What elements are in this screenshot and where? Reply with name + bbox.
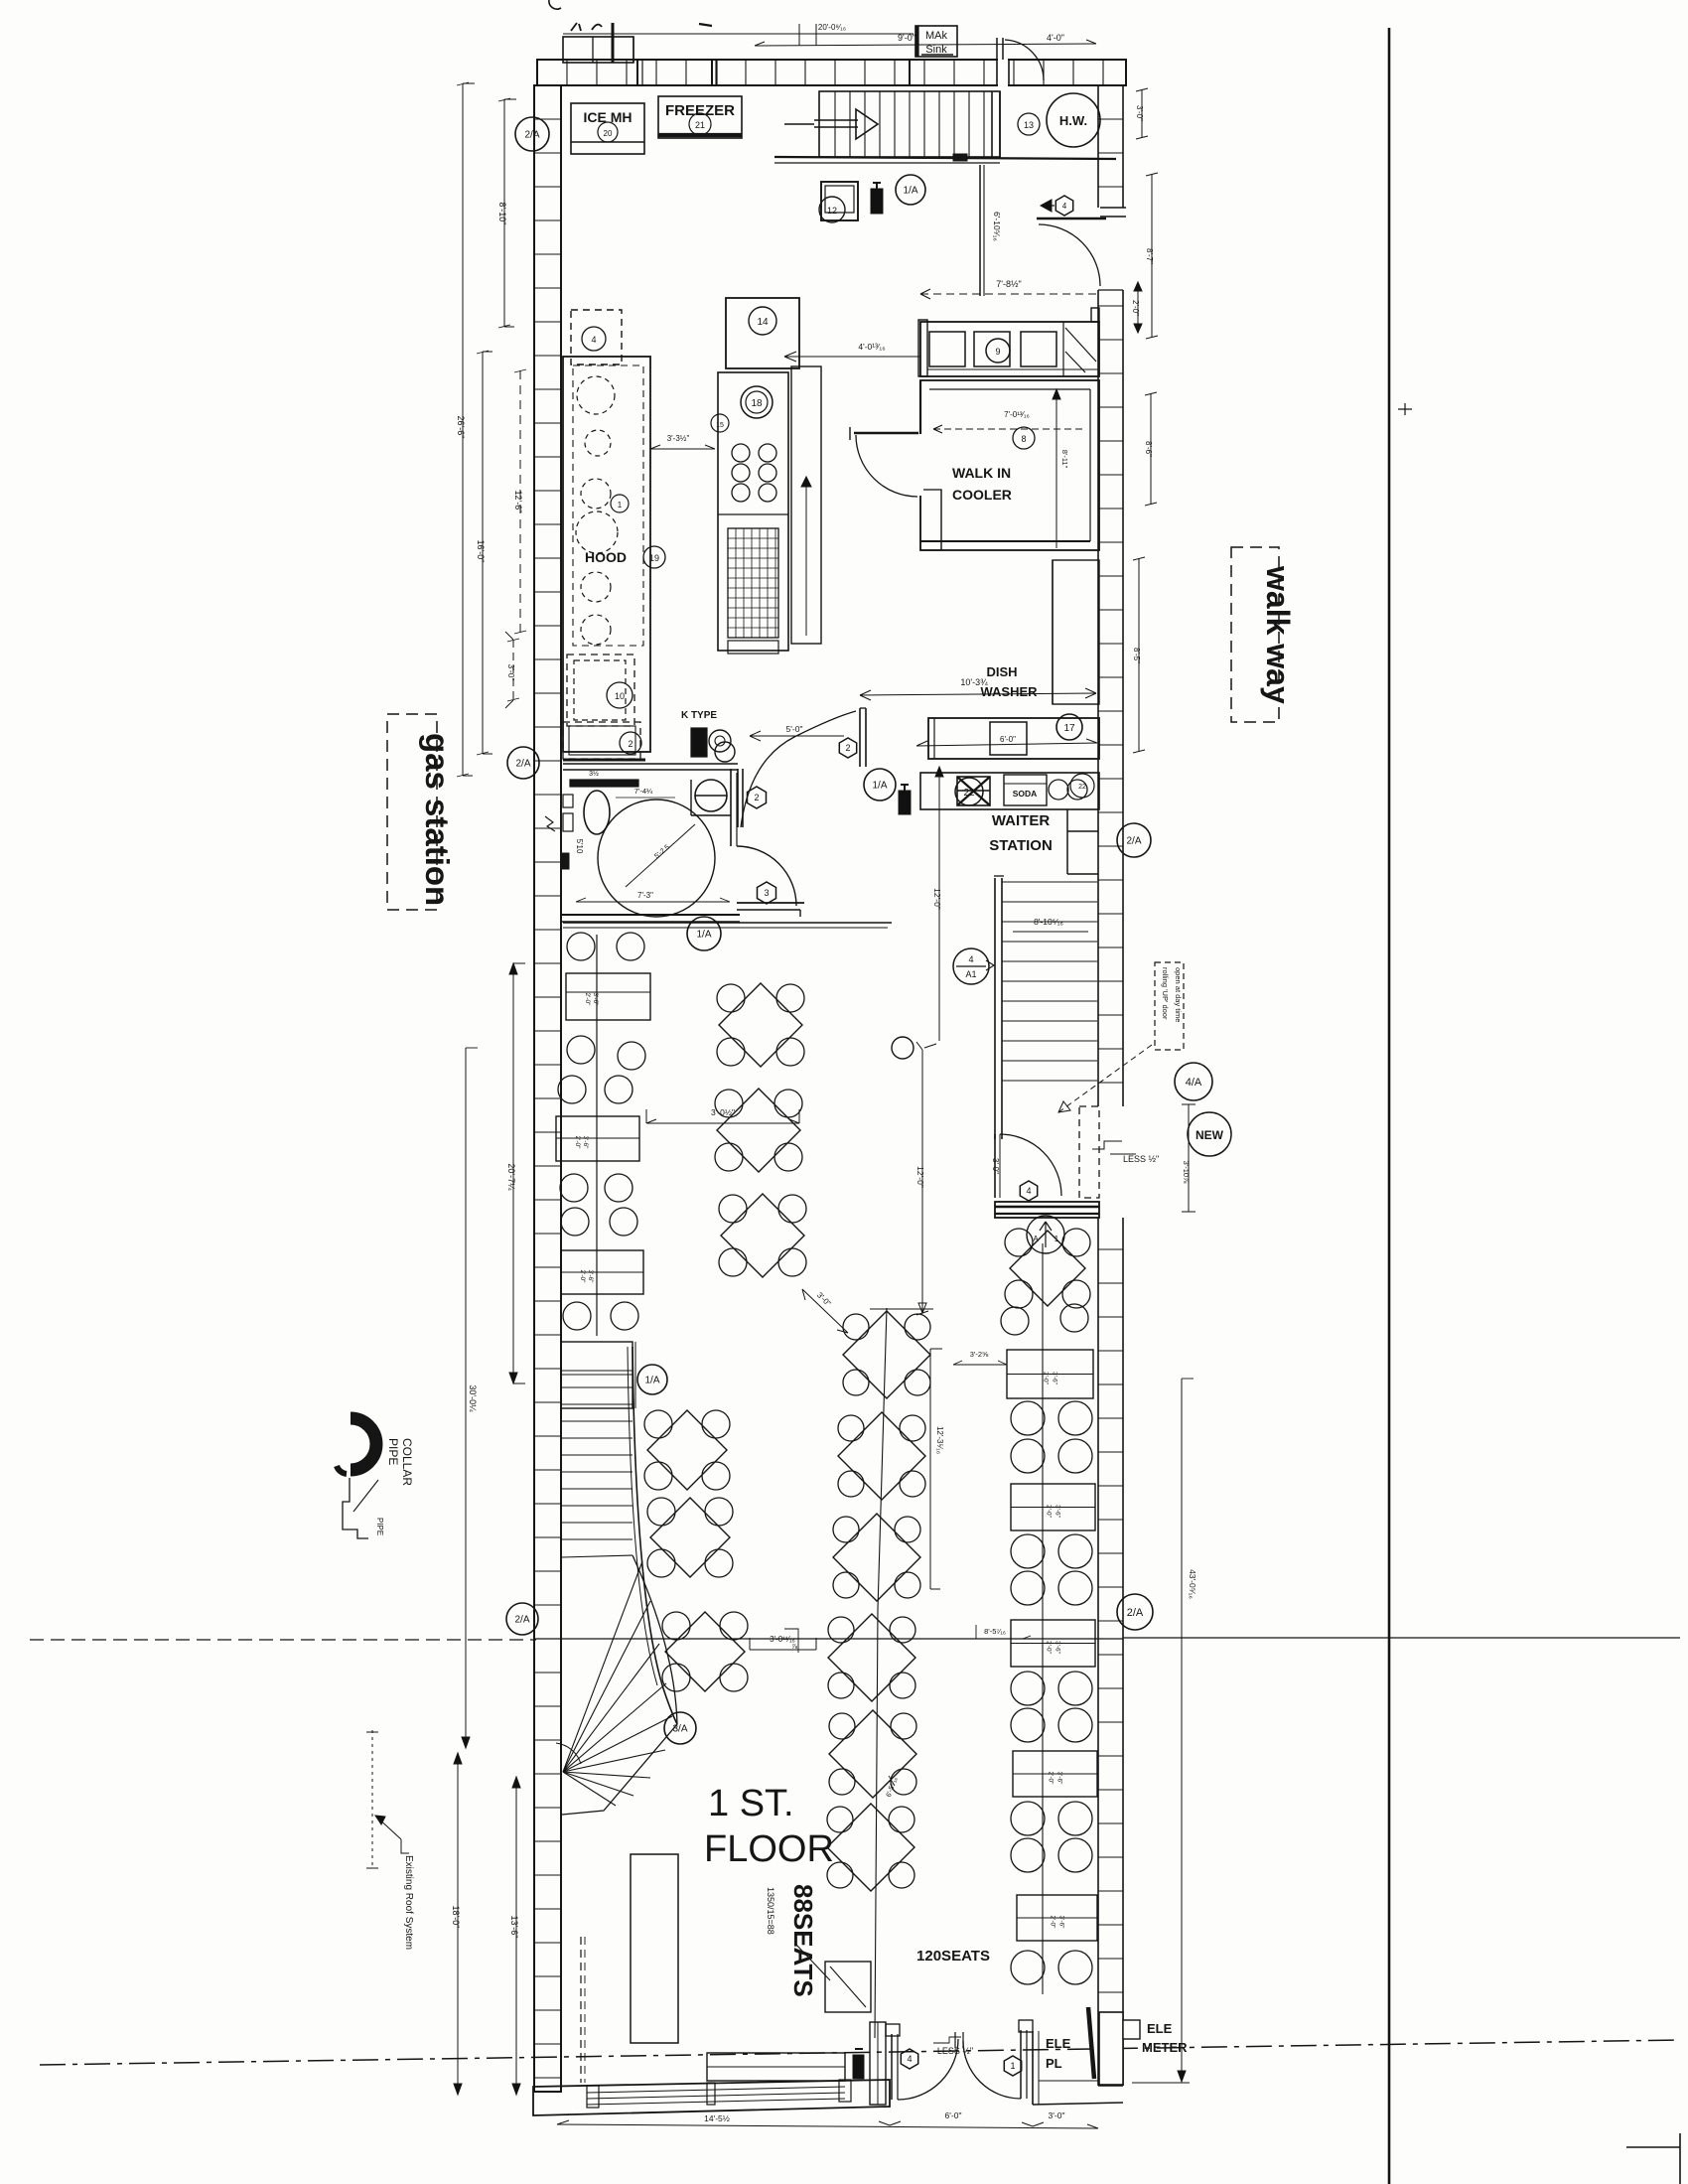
- svg-text:PIPE: PIPE: [386, 1438, 400, 1465]
- svg-text:13'-6": 13'-6": [509, 1916, 519, 1939]
- svg-text:4/A: 4/A: [1186, 1077, 1202, 1089]
- svg-text:12'-0": 12'-0": [932, 888, 942, 910]
- svg-text:120SEATS: 120SEATS: [916, 1948, 990, 1965]
- svg-text:4: 4: [591, 335, 596, 345]
- svg-text:DISH: DISH: [986, 664, 1017, 679]
- svg-text:8'-10⁵⁄₁₆: 8'-10⁵⁄₁₆: [1034, 917, 1063, 927]
- svg-text:12'-6": 12'-6": [513, 491, 523, 513]
- svg-text:3'-6": 3'-6": [582, 1136, 589, 1150]
- svg-text:19: 19: [649, 553, 659, 563]
- svg-text:2/A: 2/A: [1126, 836, 1141, 847]
- svg-text:3'-6": 3'-6": [1056, 1772, 1063, 1786]
- svg-text:6'-0": 6'-0": [1000, 735, 1016, 744]
- svg-text:METER: METER: [1142, 2040, 1188, 2055]
- svg-text:2'-0": 2'-0": [1046, 1641, 1053, 1655]
- svg-text:2'-0": 2'-0": [1048, 1772, 1055, 1786]
- svg-text:10'-3¾: 10'-3¾: [960, 677, 988, 687]
- svg-text:COOLER: COOLER: [952, 487, 1012, 503]
- svg-text:LESS ½": LESS ½": [937, 2046, 973, 2056]
- svg-text:22: 22: [1078, 784, 1086, 791]
- svg-text:PIPE: PIPE: [375, 1518, 384, 1535]
- svg-text:3'-0": 3'-0": [1049, 2111, 1065, 2120]
- svg-text:ELE: ELE: [1147, 2021, 1173, 2036]
- svg-text:1: 1: [1010, 2061, 1015, 2071]
- svg-text:3½: 3½: [589, 770, 599, 778]
- svg-text:20'-7¼: 20'-7¼: [506, 1163, 516, 1191]
- svg-text:2: 2: [754, 793, 759, 802]
- svg-text:18'-0": 18'-0": [451, 1906, 461, 1929]
- svg-text:14: 14: [757, 317, 769, 328]
- svg-text:6'-10⁵⁄₁₆: 6'-10⁵⁄₁₆: [992, 212, 1002, 241]
- svg-text:7'-8½": 7'-8½": [996, 279, 1021, 289]
- svg-text:2/A: 2/A: [514, 1615, 529, 1626]
- svg-text:1/A: 1/A: [644, 1376, 659, 1386]
- svg-text:7'-0¹³⁄₁₆: 7'-0¹³⁄₁₆: [1004, 410, 1030, 419]
- svg-text:16'-0": 16'-0": [476, 540, 486, 563]
- svg-text:4'-0": 4'-0": [1047, 33, 1064, 43]
- svg-text:1: 1: [618, 501, 623, 510]
- svg-text:2: 2: [628, 739, 633, 749]
- svg-text:9'-0": 9'-0": [898, 33, 915, 43]
- svg-text:2'-0": 2'-0": [1050, 1916, 1056, 1930]
- svg-text:43'-0⁵⁄₁₆: 43'-0⁵⁄₁₆: [1188, 1569, 1197, 1599]
- svg-text:2'-0": 2'-0": [1043, 1372, 1050, 1385]
- svg-text:WALK IN: WALK IN: [952, 465, 1011, 481]
- svg-text:2'-0": 2'-0": [584, 993, 591, 1007]
- svg-text:4: 4: [1062, 202, 1067, 211]
- svg-text:2'-0": 2'-0": [579, 1270, 586, 1284]
- svg-text:STATION: STATION: [989, 837, 1053, 854]
- svg-text:8'-5⁷⁄₁₆: 8'-5⁷⁄₁₆: [984, 1627, 1006, 1636]
- svg-text:12: 12: [827, 206, 837, 216]
- svg-text:3'-6": 3'-6": [587, 1270, 594, 1284]
- svg-text:3'-0": 3'-0": [1135, 105, 1144, 121]
- svg-text:4: 4: [968, 954, 973, 964]
- svg-text:4'-0¹³⁄₁₆: 4'-0¹³⁄₁₆: [858, 342, 885, 352]
- svg-text:PL: PL: [1046, 2056, 1062, 2071]
- svg-text:3'-6": 3'-6": [1052, 1372, 1058, 1385]
- svg-text:3: 3: [764, 888, 769, 898]
- svg-text:LESS ½": LESS ½": [1123, 1154, 1159, 1164]
- svg-text:4: 4: [1026, 1186, 1031, 1196]
- svg-text:K TYPE: K TYPE: [681, 710, 717, 721]
- svg-text:7'-4¼: 7'-4¼: [634, 787, 653, 796]
- svg-text:1/A: 1/A: [696, 930, 711, 941]
- svg-text:21: 21: [695, 120, 705, 130]
- svg-text:FLOOR: FLOOR: [704, 1828, 834, 1870]
- svg-text:NEW: NEW: [1196, 1128, 1224, 1142]
- svg-text:WASHER: WASHER: [980, 684, 1038, 699]
- svg-text:10: 10: [615, 691, 625, 701]
- svg-text:8'-6": 8'-6": [1144, 441, 1153, 457]
- svg-text:8'-5": 8'-5": [1132, 648, 1141, 663]
- svg-text:8'-11": 8'-11": [1060, 450, 1069, 469]
- svg-text:88SEATS: 88SEATS: [788, 1884, 818, 1997]
- svg-text:1350/15=88: 1350/15=88: [766, 1887, 775, 1935]
- svg-text:3'-2⅝: 3'-2⅝: [970, 1350, 989, 1359]
- svg-text:3'-0": 3'-0": [506, 664, 516, 681]
- svg-text:3'-0¹¹⁄₁₆: 3'-0¹¹⁄₁₆: [770, 1635, 795, 1644]
- svg-text:17: 17: [1063, 723, 1075, 734]
- svg-text:6'-0": 6'-0": [945, 2111, 962, 2120]
- svg-text:8'-7": 8'-7": [1145, 248, 1154, 264]
- svg-text:ELE: ELE: [1046, 2036, 1071, 2051]
- svg-text:2/A: 2/A: [1127, 1607, 1144, 1619]
- svg-text:2'-0": 2'-0": [1046, 1505, 1053, 1519]
- svg-text:MAk: MAk: [925, 30, 948, 42]
- svg-text:3'-6": 3'-6": [592, 993, 599, 1007]
- svg-text:4: 4: [907, 2054, 912, 2064]
- svg-text:Existing Roof System: Existing Roof System: [403, 1855, 414, 1950]
- svg-text:FREEZER: FREEZER: [665, 102, 735, 119]
- svg-text:12'-0": 12'-0": [915, 1166, 925, 1188]
- svg-text:15: 15: [716, 422, 724, 429]
- svg-text:22: 22: [963, 788, 975, 799]
- svg-text:2/A: 2/A: [524, 130, 539, 141]
- svg-text:14'-5½: 14'-5½: [704, 2113, 730, 2123]
- svg-text:30'-0¼: 30'-0¼: [468, 1384, 478, 1412]
- svg-text:1 ST.: 1 ST.: [708, 1783, 794, 1824]
- svg-text:Sink: Sink: [925, 44, 947, 56]
- svg-text:rolling 'UP' door: rolling 'UP' door: [1161, 967, 1170, 1020]
- svg-text:5'-0": 5'-0": [786, 724, 803, 734]
- svg-text:2'-0": 2'-0": [1131, 300, 1140, 316]
- svg-text:12'-3⁵⁄₁₆: 12'-3⁵⁄₁₆: [935, 1426, 944, 1454]
- svg-text:2/A: 2/A: [515, 759, 530, 770]
- svg-text:2: 2: [845, 743, 850, 753]
- svg-text:A1: A1: [965, 969, 976, 979]
- svg-text:⅞: ⅞: [791, 1644, 797, 1651]
- svg-text:3'-6": 3'-6": [1055, 1505, 1061, 1519]
- svg-text:WAITER: WAITER: [992, 812, 1050, 829]
- svg-text:3/A: 3/A: [672, 1724, 687, 1735]
- svg-text:13: 13: [1024, 120, 1034, 130]
- svg-text:18: 18: [751, 398, 763, 409]
- svg-text:walk way: walk way: [1260, 565, 1296, 704]
- svg-text:8'-10": 8'-10": [497, 203, 507, 225]
- svg-text:3'-6": 3'-6": [1058, 1916, 1065, 1930]
- svg-text:HOOD: HOOD: [585, 549, 627, 565]
- svg-text:3'-10⅞: 3'-10⅞: [1182, 1161, 1191, 1184]
- svg-text:SODA: SODA: [1013, 789, 1038, 799]
- svg-text:8: 8: [1021, 434, 1026, 444]
- svg-text:gas station: gas station: [419, 733, 456, 906]
- svg-text:3'-0": 3'-0": [991, 1158, 1000, 1174]
- svg-text:1/A: 1/A: [903, 186, 917, 197]
- svg-text:2'-0": 2'-0": [574, 1136, 581, 1150]
- svg-text:1/A: 1/A: [872, 781, 887, 792]
- svg-text:H.W.: H.W.: [1059, 113, 1087, 128]
- svg-text:3'-3½": 3'-3½": [667, 434, 690, 443]
- svg-text:26'-6": 26'-6": [456, 416, 466, 439]
- svg-text:open at day time: open at day time: [1174, 967, 1183, 1022]
- svg-text:3'-6": 3'-6": [1055, 1641, 1061, 1655]
- svg-text:20'-0⁹⁄₁₆: 20'-0⁹⁄₁₆: [818, 23, 846, 32]
- svg-text:5'10: 5'10: [575, 839, 584, 854]
- svg-text:COLLAR: COLLAR: [400, 1438, 414, 1486]
- svg-text:20: 20: [604, 129, 613, 138]
- svg-text:7'-3": 7'-3": [637, 891, 653, 900]
- svg-text:9: 9: [995, 347, 1000, 357]
